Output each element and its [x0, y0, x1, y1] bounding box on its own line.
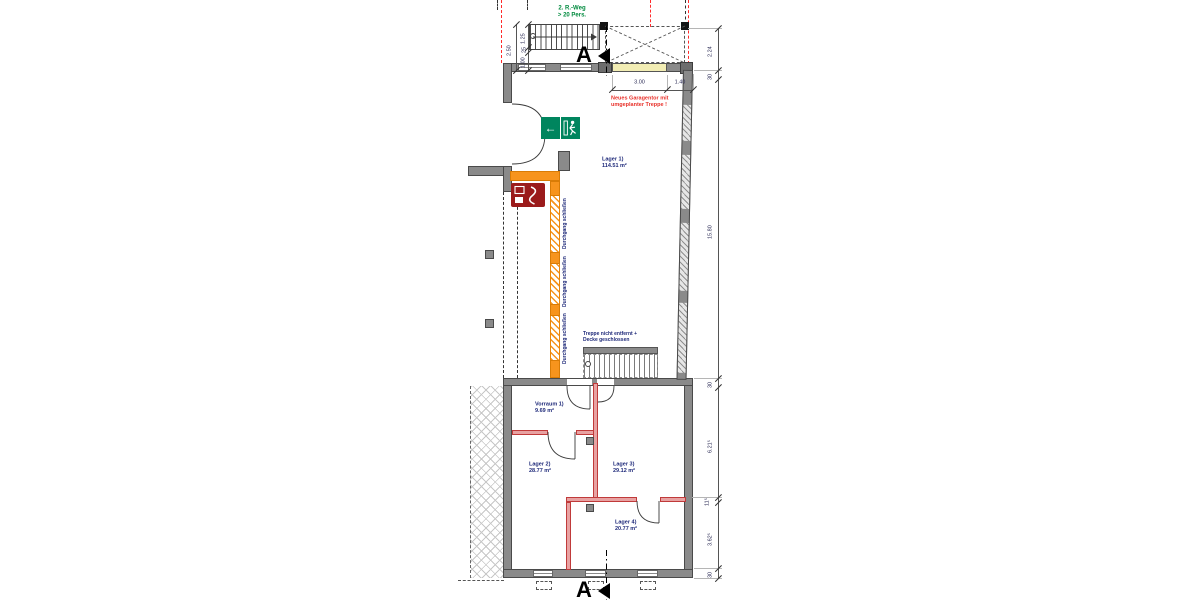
closed-passage-hatch-1 — [550, 196, 560, 252]
room-label-lager4: Lager 4) 20.77 m² — [615, 519, 637, 532]
dim-right-6: 3.62⁵ — [707, 533, 713, 546]
garage-note-line2: umgeplanter Treppe ! — [611, 102, 668, 109]
escape-route-line2: > 20 Pers. — [542, 11, 602, 18]
dim-right-7: 30 — [707, 572, 713, 578]
new-wall-orange — [550, 252, 560, 264]
new-wall-orange — [550, 360, 560, 378]
demolition-line — [501, 0, 502, 63]
column — [586, 504, 594, 512]
section-arrow-icon — [598, 583, 610, 599]
stair-walkline-start — [585, 361, 591, 367]
section-arrow-icon — [598, 48, 610, 64]
wall-left-upper — [503, 63, 512, 103]
exit-runner-icon — [563, 119, 578, 137]
dimension-line — [612, 90, 693, 91]
removed-structure-box — [605, 26, 685, 63]
escape-route-note: 2. R.-Weg > 20 Pers. — [542, 4, 602, 18]
wall-right-upper — [677, 70, 693, 380]
dimension-stub-line — [497, 0, 498, 10]
room-area: 28.77 m² — [529, 468, 551, 475]
closed-ceiling-edge — [583, 347, 658, 354]
lager4-door-swing — [637, 501, 659, 523]
wall-stub-left — [468, 166, 504, 176]
room-label-lager1: Lager 1) 114.51 m² — [602, 156, 627, 169]
dim-right-3: 30 — [707, 382, 713, 388]
window-right-3 — [679, 223, 688, 291]
former-wall-line — [517, 192, 518, 378]
floor-plan: 2.50 1.25 25 1.00 3.00 1.40 2.24 30 15.8… — [0, 0, 1200, 600]
new-wall-orange-horizontal — [510, 171, 560, 181]
new-wall-vorraum — [512, 430, 548, 435]
demolition-line — [650, 0, 651, 27]
dim-right-4: 6.21⁵ — [707, 440, 713, 453]
dimension-stub-line — [527, 0, 528, 10]
dim-garage-width: 3.00 — [612, 79, 667, 85]
room-label-lager3: Lager 3) 29.12 m² — [613, 461, 635, 474]
window-right-4 — [678, 303, 687, 373]
lager2-door-swing — [548, 432, 575, 459]
column — [485, 250, 494, 259]
dim-right-0: 2.24 — [707, 46, 713, 57]
escape-route-line1: 2. R.-Weg — [542, 4, 602, 11]
lager3-door-swing — [598, 386, 614, 402]
room-area: 20.77 m² — [615, 526, 637, 533]
room-label-lager2: Lager 2) 28.77 m² — [529, 461, 551, 474]
dim-garage-side: 1.40 — [667, 79, 693, 85]
room-area: 114.51 m² — [602, 163, 627, 170]
adjacent-building-hatch — [470, 386, 503, 578]
new-garage-door-lintel — [612, 63, 667, 72]
window-right-1 — [683, 105, 692, 141]
closed-passage-hatch-3 — [550, 316, 560, 360]
former-wall-line — [503, 192, 504, 378]
wall-left-lower — [503, 378, 512, 578]
section-label-top: A — [576, 42, 592, 68]
window-bottom-3 — [637, 570, 658, 577]
window-right-2 — [681, 155, 690, 209]
dim-right-2: 15.80 — [707, 225, 713, 239]
stair-note-line2: Decke geschlossen — [583, 337, 637, 343]
room-label-vorraum1: Vorraum 1) 9.69 m² — [535, 401, 564, 414]
wall-hydrant-icon — [511, 183, 545, 207]
boundary-dashed-line — [458, 580, 504, 581]
window-bottom-1 — [533, 570, 553, 577]
close-passage-label-2: Durchgang schließen — [562, 256, 568, 307]
room-area: 29.12 m² — [613, 468, 635, 475]
emergency-exit-sign: ← — [541, 117, 580, 139]
wall-right-lower — [684, 378, 693, 578]
column — [586, 437, 594, 445]
vorraum-door-swing — [567, 386, 590, 409]
exit-arrow-box: ← — [541, 117, 560, 139]
close-passage-label-3: Durchgang schließen — [562, 313, 568, 364]
new-wall-orange — [550, 304, 560, 316]
new-wall-lager4-top — [660, 497, 686, 502]
new-wall-lager4-top — [566, 497, 637, 502]
vorraum-door-opening — [567, 379, 592, 386]
dimension-line — [516, 24, 517, 70]
dim-right-5: 11⁵ — [704, 498, 710, 506]
dim-left-total: 2.50 — [506, 45, 512, 56]
garage-note: Neues Garagentor mit umgeplanter Treppe … — [611, 95, 668, 108]
lager3-door-opening — [597, 379, 614, 386]
wall-pier-orange-junction — [558, 151, 570, 171]
new-wall-orange — [550, 181, 560, 196]
dim-right-1: 30 — [707, 74, 713, 80]
dim-stair-1: 1.25 — [520, 33, 526, 44]
window-bottom-2 — [585, 570, 606, 577]
interior-stair-dashed — [583, 354, 658, 378]
window-sill-outline — [640, 581, 656, 590]
door-swing-overlay — [0, 0, 1200, 600]
column — [485, 319, 494, 328]
room-area: 9.69 m² — [535, 408, 564, 415]
entrance-door-opening — [504, 103, 512, 166]
stair-note: Treppe nicht entfernt + Decke geschlosse… — [583, 331, 637, 343]
new-wall-lager4-left — [566, 502, 571, 570]
exit-arrow-icon: ← — [545, 122, 557, 134]
demolition-line — [688, 0, 689, 64]
closed-passage-hatch-2 — [550, 264, 560, 304]
section-label-bottom: A — [576, 577, 592, 600]
dim-stair-3: 1.00 — [520, 57, 526, 68]
window-sill-outline — [536, 581, 552, 590]
dim-stair-2: 25 — [521, 47, 527, 53]
exit-runner-box — [561, 117, 580, 139]
close-passage-label-1: Durchgang schließen — [562, 198, 568, 249]
stair-walkline-start — [530, 33, 536, 39]
